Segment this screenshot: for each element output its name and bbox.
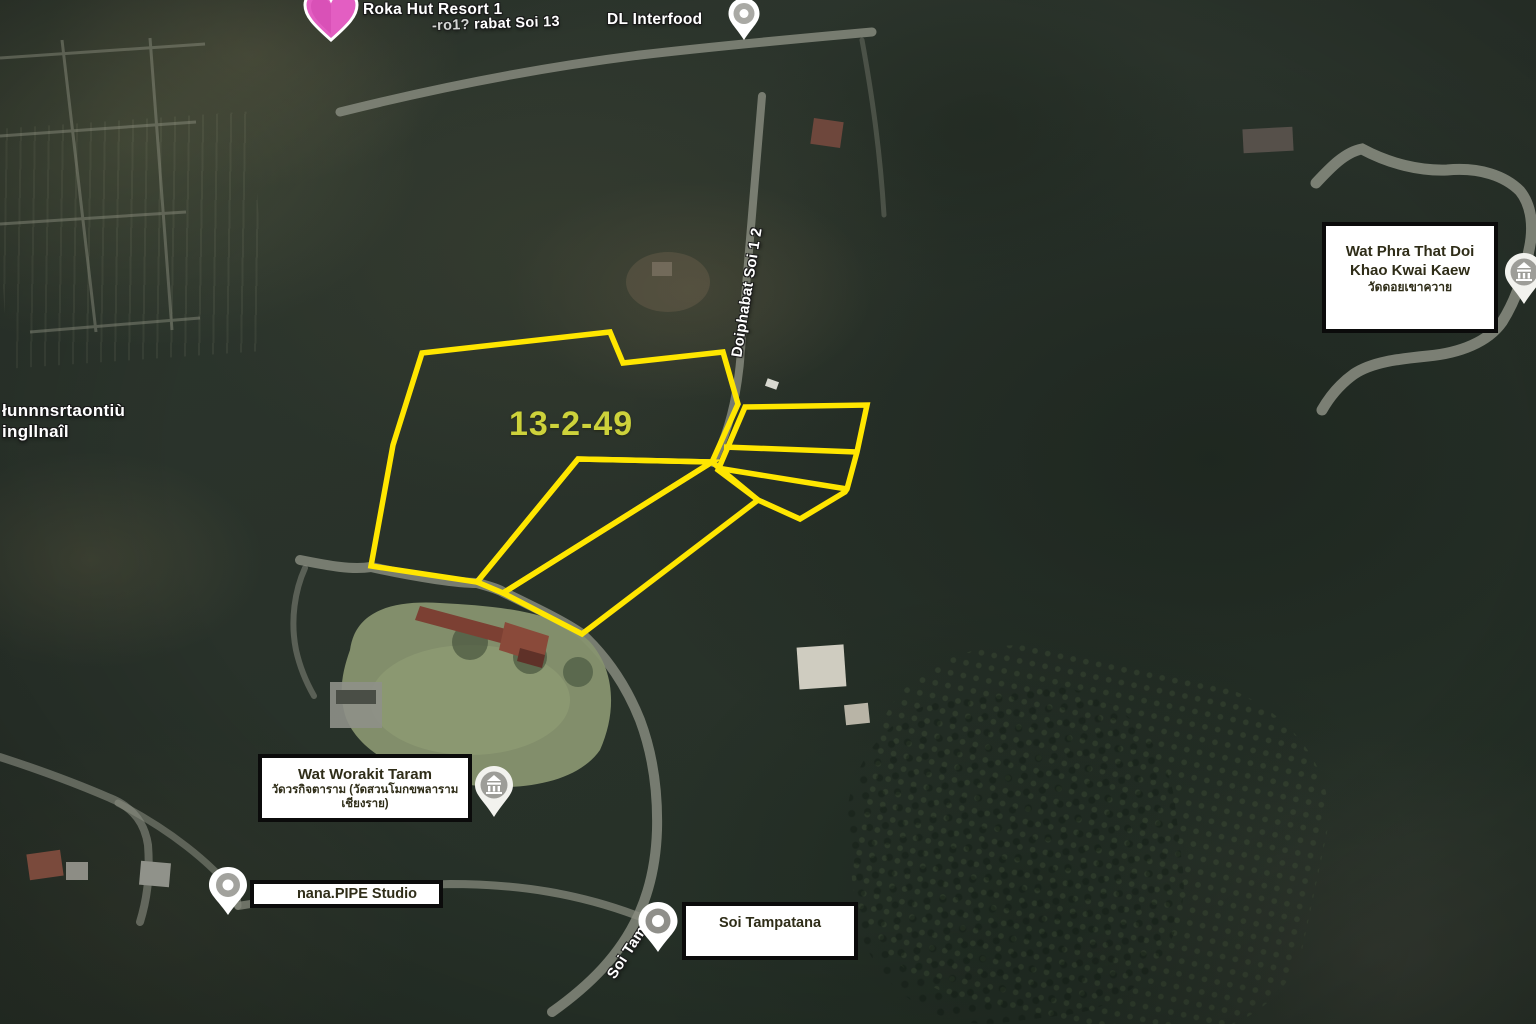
satellite-map[interactable]: Roka Hut Resort 1 -ro1? rabat Soi 13 DL … <box>0 0 1536 1024</box>
parcel-outlines <box>371 332 867 634</box>
annotation-line: Soi Tampatana <box>719 914 821 933</box>
buildings <box>26 118 1293 887</box>
road-label-soi13-garbled: -ro1? <box>432 17 475 34</box>
area-label-thai: łunnnsrtaontiù ingllnaîl <box>2 400 125 442</box>
annotation-box-wat-worakit: Wat Worakit Taram วัดวรกิจตาราม (วัดสวนโ… <box>258 754 472 822</box>
farm-tracks <box>0 38 205 332</box>
temple-pin-icon[interactable] <box>473 765 515 824</box>
annotation-line: วัดดอยเขาควาย <box>1368 280 1452 295</box>
heart-pin-icon[interactable] <box>302 0 360 49</box>
area-label-thai-line2: ingllnaîl <box>2 421 125 442</box>
annotation-box-wat-phra-that: Wat Phra That Doi Khao Kwai Kaew วัดดอยเ… <box>1322 222 1498 333</box>
roads <box>0 32 1532 1012</box>
annotation-line: เชียงราย) <box>341 797 388 811</box>
road-label-soi13-text: rabat Soi 13 <box>474 14 560 33</box>
annotation-line: Wat Worakit Taram <box>298 766 432 783</box>
annotation-box-soi-tampatana: Soi Tampatana <box>682 902 858 960</box>
poi-pin-icon[interactable] <box>207 866 249 921</box>
parcel-divider-1 <box>724 447 857 452</box>
poi-pin-icon[interactable] <box>727 0 761 46</box>
annotation-line: วัดวรกิจตาราม (วัดสวนโมกขพลาราม <box>272 783 459 797</box>
parcel-main-outline <box>371 332 738 582</box>
parcel-right-group-outline <box>718 405 867 519</box>
temple-pin-icon[interactable] <box>1503 252 1536 311</box>
annotation-box-nana-pipe: nana.PIPE Studio <box>250 880 443 908</box>
parcel-area-label: 13-2-49 <box>509 405 633 444</box>
poi-label-dl-interfood[interactable]: DL Interfood <box>607 11 702 29</box>
annotation-line: Khao Kwai Kaew <box>1350 261 1470 280</box>
area-label-thai-line1: łunnnsrtaontiù <box>2 400 125 421</box>
annotation-line: Wat Phra That Doi <box>1346 242 1475 261</box>
poi-pin-icon[interactable] <box>636 901 680 958</box>
annotation-line: nana.PIPE Studio <box>297 885 417 904</box>
parcel-middle-strip-outline <box>477 459 712 593</box>
